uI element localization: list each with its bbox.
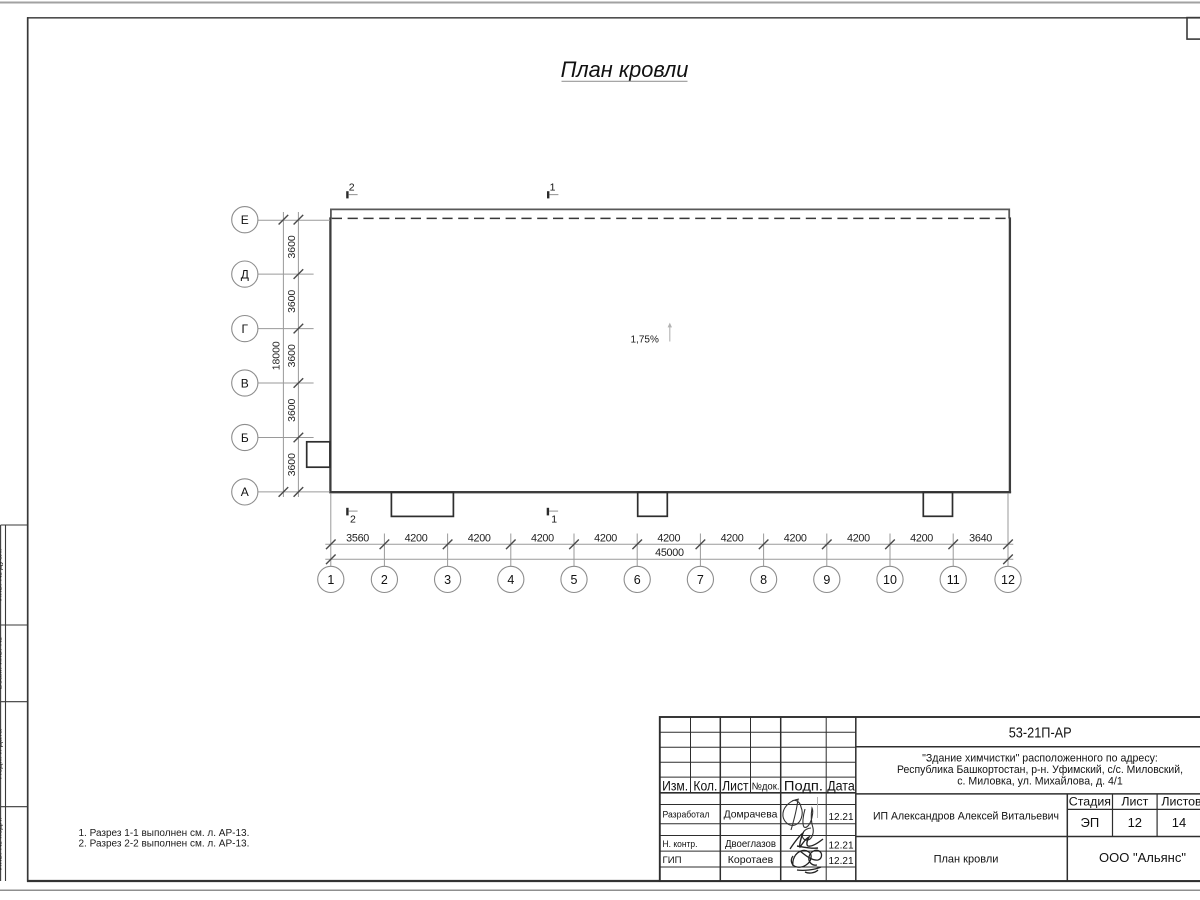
- svg-text:2: 2: [381, 573, 388, 587]
- svg-text:12: 12: [1001, 573, 1015, 587]
- svg-text:53-21П-АР: 53-21П-АР: [1009, 724, 1072, 741]
- svg-text:Взам. инв. №: Взам. инв. №: [0, 637, 3, 690]
- svg-text:1: 1: [550, 181, 556, 193]
- svg-text:12: 12: [1128, 815, 1142, 830]
- svg-text:ГИП: ГИП: [663, 855, 682, 866]
- svg-text:45000: 45000: [655, 547, 684, 559]
- svg-text:Инв. № подл.: Инв. № подл.: [0, 817, 3, 870]
- svg-text:4200: 4200: [847, 533, 870, 545]
- svg-text:10: 10: [883, 573, 897, 587]
- svg-text:2: 2: [350, 513, 356, 525]
- svg-text:Разработал: Разработал: [663, 810, 710, 821]
- svg-text:4200: 4200: [784, 533, 807, 545]
- svg-text:2. Разрез 2-2 выполнен см. л.: 2. Разрез 2-2 выполнен см. л. АР-13.: [79, 839, 250, 850]
- svg-text:4200: 4200: [594, 533, 617, 545]
- svg-text:8: 8: [760, 573, 767, 587]
- svg-text:4200: 4200: [721, 533, 744, 545]
- svg-text:4200: 4200: [657, 533, 680, 545]
- svg-text:Подп.: Подп.: [784, 778, 823, 794]
- svg-text:4200: 4200: [910, 533, 933, 545]
- svg-text:12.21: 12.21: [828, 840, 853, 851]
- svg-text:А: А: [241, 485, 249, 499]
- svg-text:1: 1: [327, 573, 334, 587]
- svg-text:Е: Е: [241, 213, 249, 227]
- svg-text:5: 5: [571, 573, 578, 587]
- svg-text:Б: Б: [241, 431, 249, 445]
- svg-text:Домрачева: Домрачева: [724, 810, 778, 821]
- svg-text:Лист: Лист: [722, 778, 749, 794]
- svg-text:9: 9: [823, 573, 830, 587]
- svg-text:Коротаев: Коротаев: [728, 855, 774, 866]
- svg-text:ООО "Альянс": ООО "Альянс": [1099, 850, 1186, 865]
- svg-text:"Здание химчистки" расположенн: "Здание химчистки" расположенного по адр…: [922, 753, 1158, 765]
- svg-text:Двоеглазов: Двоеглазов: [725, 839, 776, 850]
- svg-text:7: 7: [697, 573, 704, 587]
- svg-text:Лист: Лист: [1121, 794, 1148, 808]
- svg-text:1. Разрез 1-1 выполнен см. л.: 1. Разрез 1-1 выполнен см. л. АР-13.: [79, 828, 250, 839]
- svg-text:ЭП: ЭП: [1081, 815, 1100, 830]
- svg-text:1,75%: 1,75%: [631, 335, 659, 346]
- svg-text:4200: 4200: [468, 533, 491, 545]
- svg-text:4: 4: [507, 573, 514, 587]
- svg-text:Кол.: Кол.: [693, 778, 717, 794]
- svg-text:14: 14: [1172, 815, 1186, 830]
- svg-text:12.21: 12.21: [828, 812, 853, 823]
- svg-text:Листов: Листов: [1161, 794, 1200, 808]
- svg-text:с. Миловка, ул. Михайлова, д.: с. Миловка, ул. Михайлова, д. 4/1: [957, 775, 1123, 787]
- svg-text:3600: 3600: [287, 290, 298, 313]
- svg-text:ИП Александров Алексей Виталье: ИП Александров Алексей Витальевич: [873, 811, 1059, 823]
- svg-text:2: 2: [349, 181, 355, 193]
- svg-text:Стадия: Стадия: [1069, 794, 1111, 808]
- svg-text:Н. контр.: Н. контр.: [663, 839, 698, 850]
- svg-text:Д: Д: [241, 267, 249, 281]
- svg-text:Инв. № дубл.: Инв. № дубл.: [0, 549, 3, 602]
- svg-text:Изм.: Изм.: [662, 778, 688, 794]
- svg-text:3640: 3640: [969, 533, 992, 545]
- svg-text:Подп. и дата: Подп. и дата: [0, 729, 3, 779]
- svg-text:3600: 3600: [287, 344, 298, 367]
- svg-text:4200: 4200: [531, 533, 554, 545]
- svg-text:План кровли: План кровли: [561, 57, 689, 82]
- svg-text:3560: 3560: [346, 533, 369, 545]
- svg-text:3600: 3600: [287, 398, 298, 421]
- svg-text:№док.: №док.: [752, 782, 780, 793]
- svg-text:3: 3: [444, 573, 451, 587]
- svg-text:Республика Башкортостан, р-н.: Республика Башкортостан, р-н. Уфимский, …: [897, 764, 1183, 776]
- svg-text:4200: 4200: [405, 533, 428, 545]
- svg-text:6: 6: [634, 573, 641, 587]
- svg-text:Г: Г: [242, 322, 249, 336]
- svg-text:3600: 3600: [287, 453, 298, 476]
- svg-text:План кровли: План кровли: [934, 853, 999, 865]
- svg-text:11: 11: [947, 573, 960, 587]
- svg-text:1: 1: [551, 513, 557, 525]
- svg-text:3600: 3600: [287, 235, 298, 258]
- svg-text:В: В: [241, 376, 249, 390]
- svg-text:18000: 18000: [272, 341, 283, 370]
- svg-text:12.21: 12.21: [828, 856, 853, 867]
- svg-text:Дата: Дата: [827, 778, 855, 794]
